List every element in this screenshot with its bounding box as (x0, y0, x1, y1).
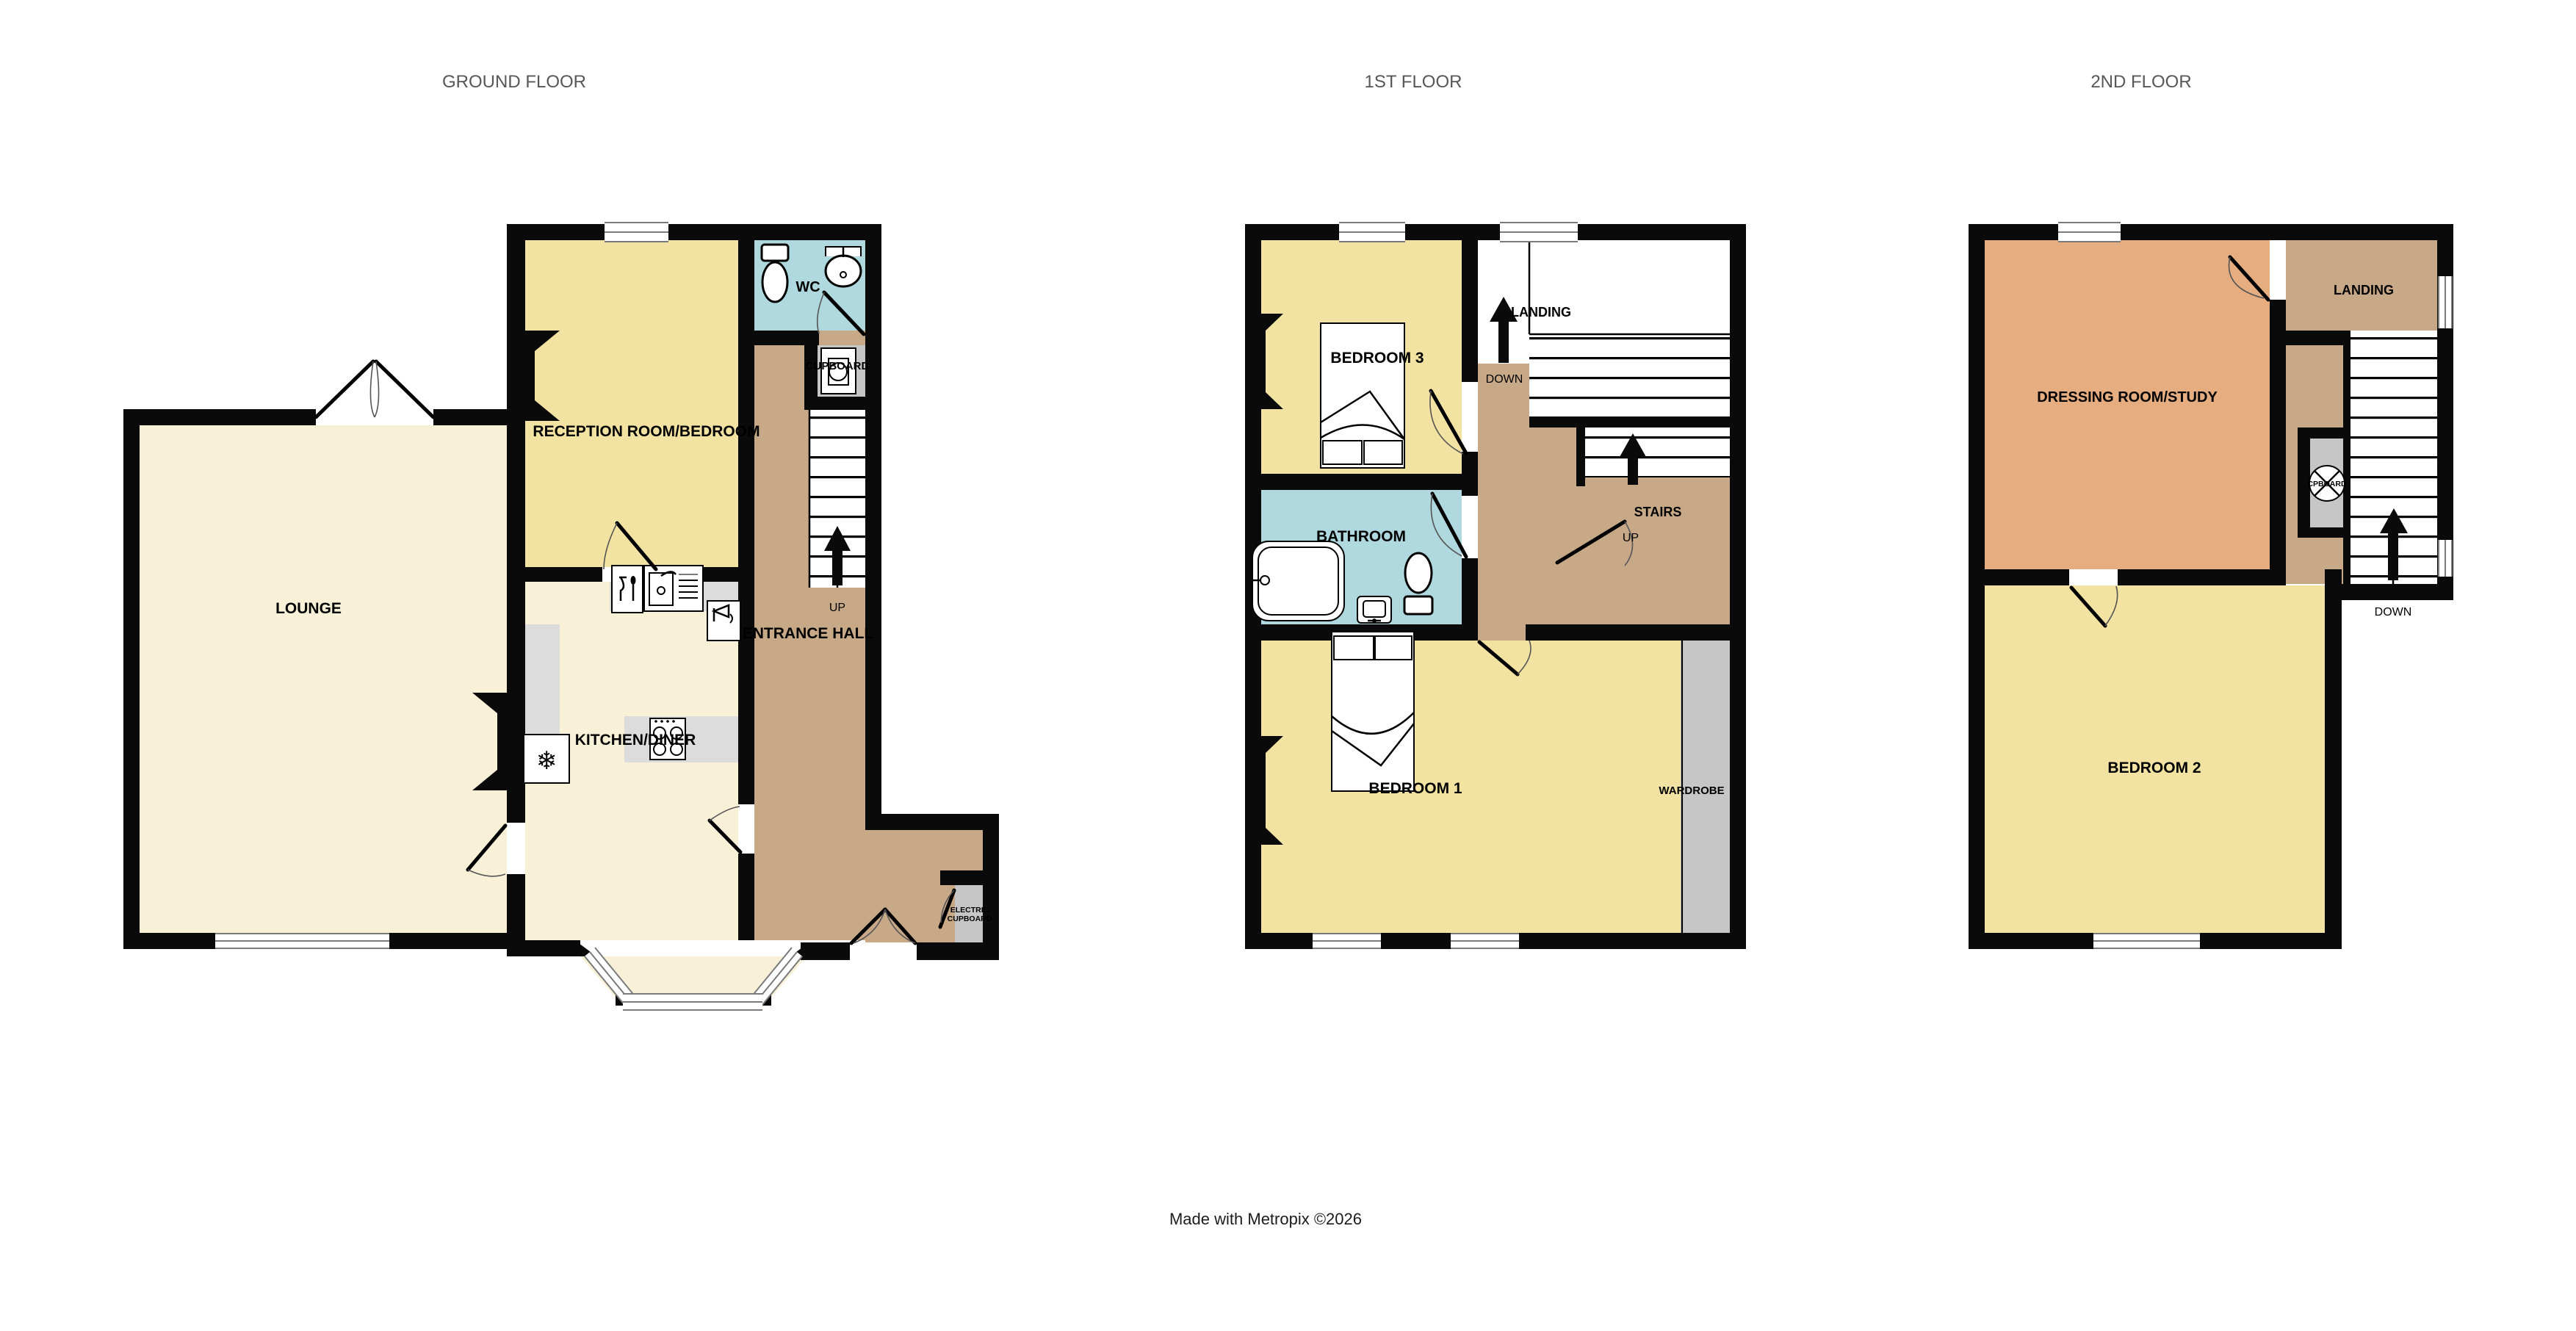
metropix-credit: Made with Metropix ©2026 (1169, 1210, 1362, 1228)
lounge-room (140, 425, 507, 933)
entrance-hall-label: ENTRANCE HALL (743, 625, 874, 642)
stairs-from-second (1529, 334, 1730, 416)
electric-cupboard-label-2: CUPBOARD (948, 915, 992, 923)
bedroom2-label: BEDROOM 2 (2107, 760, 2201, 776)
extractor-icon (707, 601, 740, 641)
bathroom-label: BATHROOM (1316, 528, 1406, 545)
reception-label: RECEPTION ROOM/BEDROOM (533, 423, 760, 440)
first-down-label: DOWN (1486, 373, 1523, 386)
toilet-icon (762, 245, 788, 302)
kitchen-sink-icon (644, 566, 703, 611)
kitchen-counter-left (525, 624, 560, 738)
first-landing-label: LANDING (1511, 305, 1571, 320)
ground-floor-plan: ❄ LOUNGE RECEPTION ROOM/BEDROOM WC (123, 223, 999, 1010)
first-floor-plan: BEDROOM 3 LANDING DOWN BATHROOM STAIRS U… (1245, 223, 1746, 949)
lounge-label: LOUNGE (275, 600, 342, 617)
electric-cupboard-label-1: ELECTRIC (950, 906, 989, 915)
bedroom3-bed-icon (1321, 323, 1404, 468)
landing-arrow-shaft (1498, 317, 1509, 363)
bedroom1-room (1261, 641, 1681, 933)
cpboard-label: CPBOARD (2307, 480, 2347, 488)
second-floor-plan: DRESSING ROOM/STUDY LANDING CPBOARD DOWN… (1969, 223, 2453, 949)
glass-rack-icon (612, 566, 643, 613)
ground-floor-title: GROUND FLOOR (442, 72, 586, 92)
svg-text:❄: ❄ (536, 746, 558, 776)
bedroom1-label: BEDROOM 1 (1368, 780, 1462, 797)
stairs-label: STAIRS (1634, 505, 1682, 519)
second-down-label: DOWN (2375, 606, 2412, 618)
wc-sink-icon (826, 247, 861, 286)
ground-staircase (809, 410, 865, 588)
wc-label: WC (795, 279, 820, 295)
basin-icon (1357, 596, 1391, 623)
bath-icon (1252, 541, 1344, 621)
ground-up-label: UP (829, 602, 845, 614)
wardrobe-label: WARDROBE (1659, 784, 1724, 797)
dressing-room-label: DRESSING ROOM/STUDY (2037, 389, 2218, 405)
bedroom1-bed-icon (1332, 632, 1414, 791)
kitchen-label: KITCHEN/DINER (575, 732, 696, 749)
floorplan-page: GROUND FLOOR 1ST FLOOR 2ND FLOOR (0, 0, 2576, 1331)
toilet2-icon (1404, 553, 1432, 614)
freezer-icon: ❄ (524, 735, 569, 783)
first-floor-title: 1ST FLOOR (1365, 72, 1462, 92)
floorplan-canvas: GROUND FLOOR 1ST FLOOR 2ND FLOOR (0, 0, 2576, 1331)
second-landing-label: LANDING (2334, 283, 2394, 297)
first-up-label: UP (1623, 532, 1639, 544)
reception-room (525, 240, 738, 567)
stairs-to-second (1581, 428, 1730, 477)
second-floor-title: 2ND FLOOR (2090, 72, 2191, 92)
bedroom3-label: BEDROOM 3 (1330, 350, 1424, 367)
cupboard-label: CUPBOARD (806, 360, 870, 372)
